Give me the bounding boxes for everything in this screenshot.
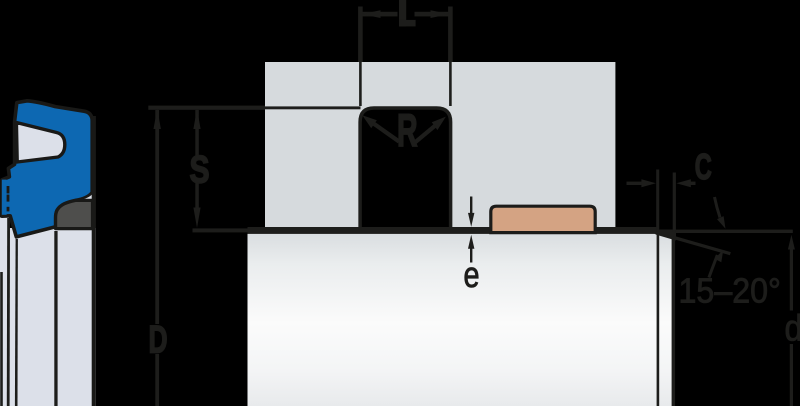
- svg-text:e: e: [464, 254, 480, 295]
- svg-text:R: R: [397, 104, 418, 156]
- svg-text:S: S: [190, 149, 210, 192]
- svg-text:D: D: [149, 318, 168, 361]
- svg-text:d: d: [785, 308, 800, 349]
- svg-text:15–20°: 15–20°: [679, 272, 781, 311]
- svg-text:C: C: [695, 146, 712, 187]
